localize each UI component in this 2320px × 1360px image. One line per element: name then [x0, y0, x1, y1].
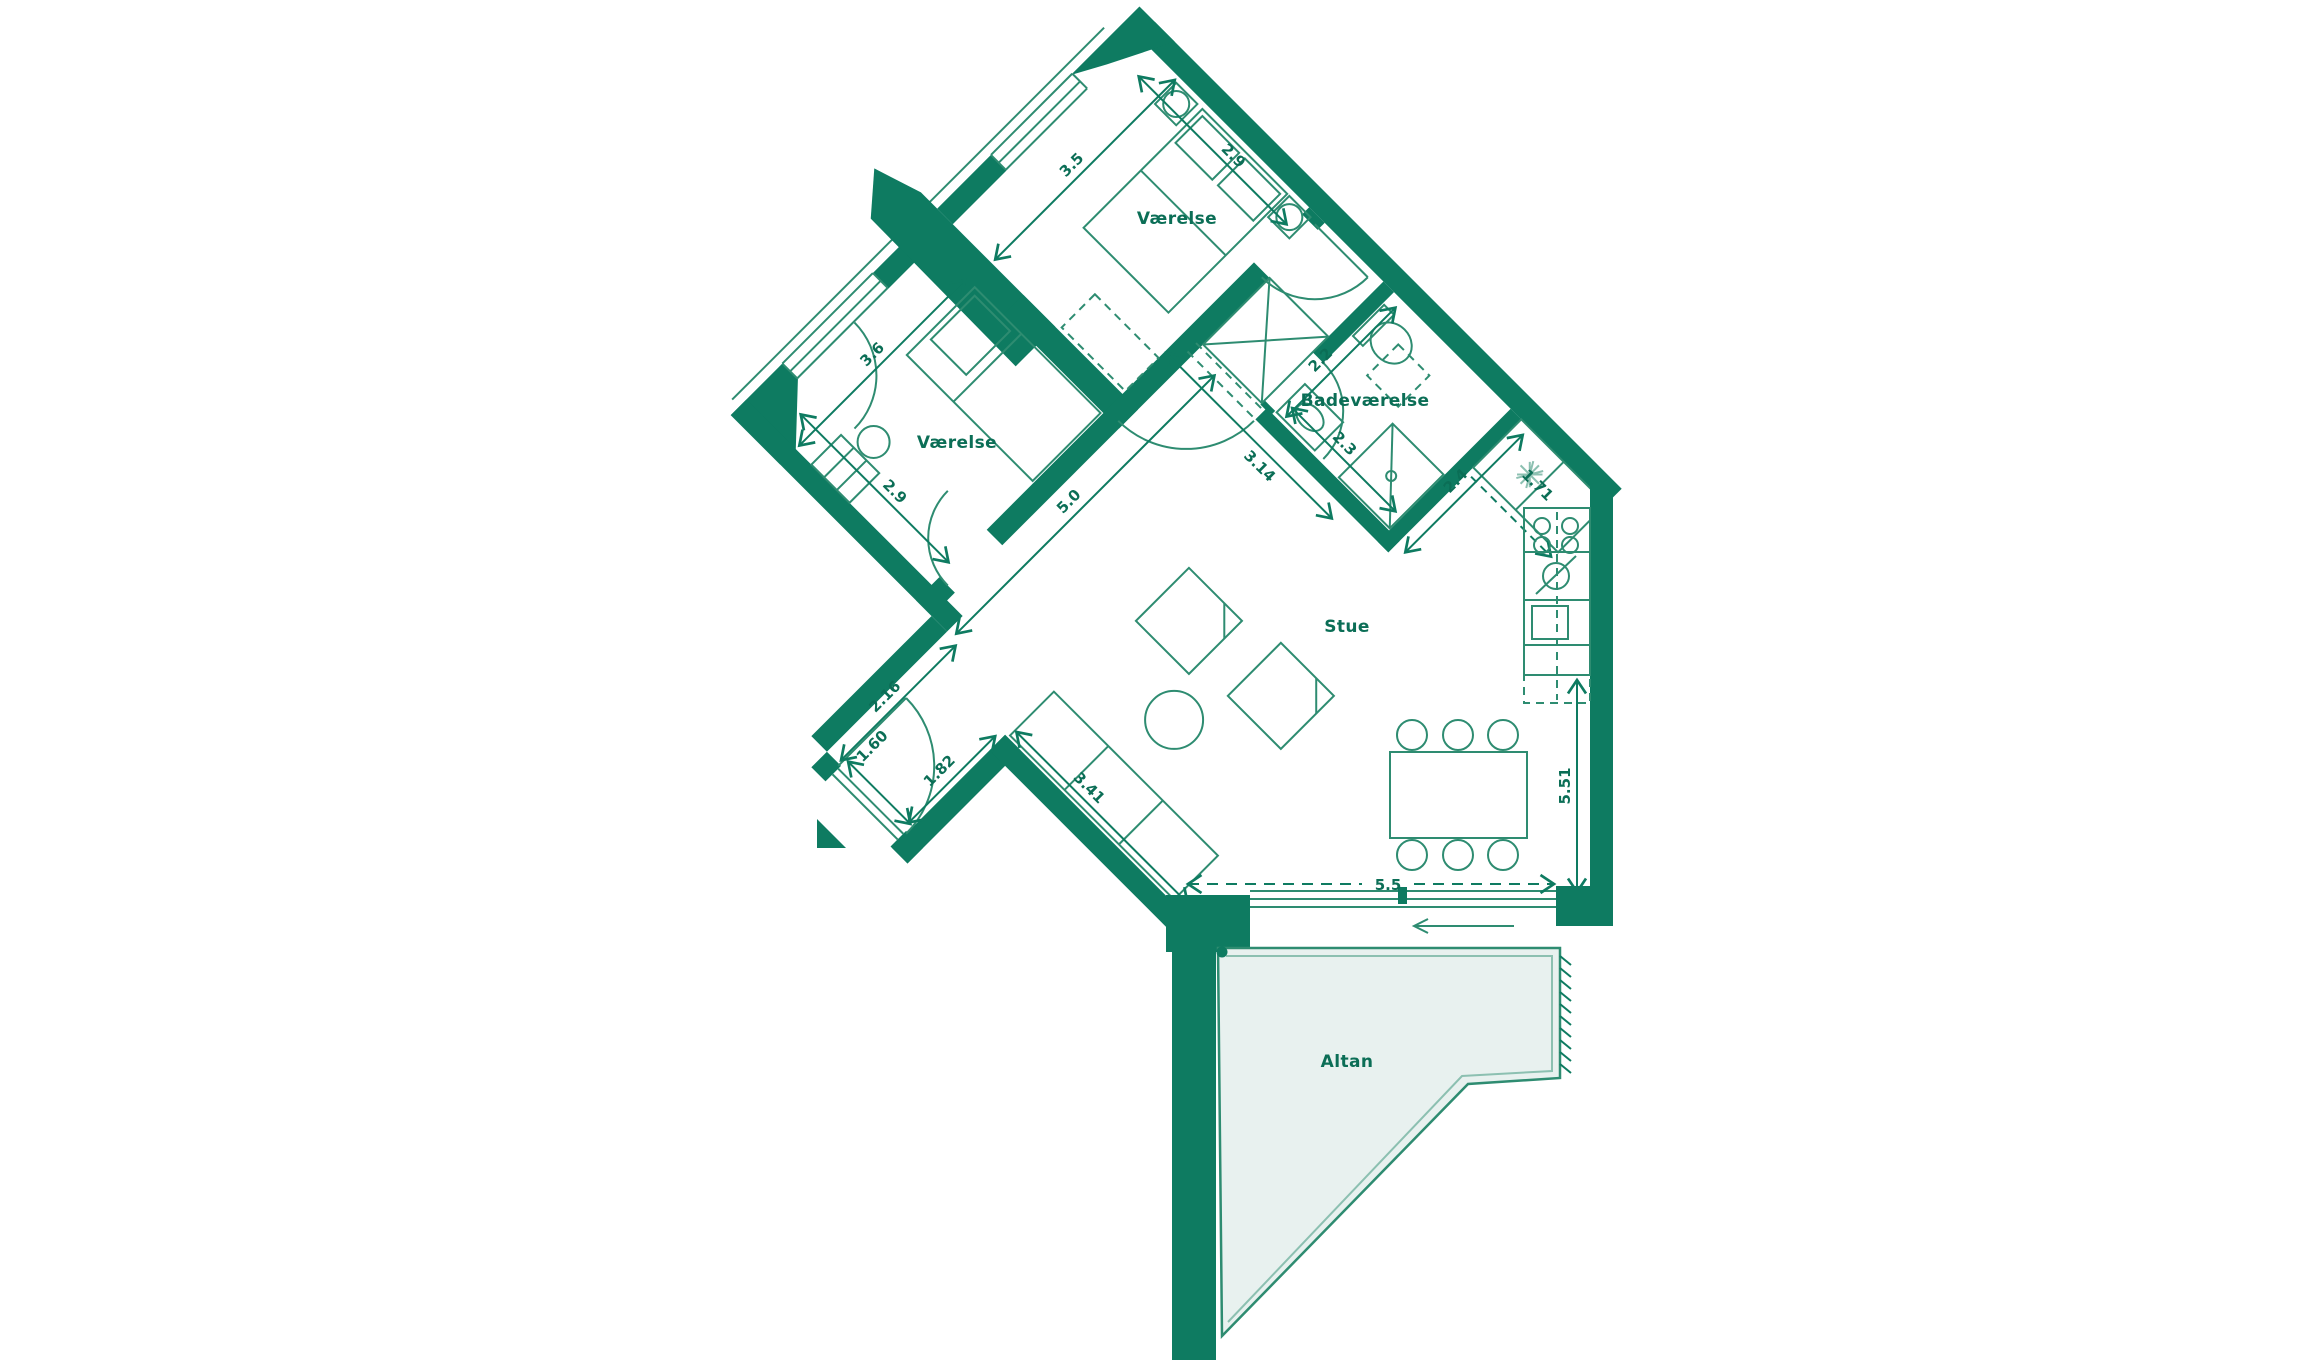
wall-corner-se [1556, 886, 1613, 926]
dim-entrance-door: 1.60 [853, 727, 892, 766]
dim-bedroom-left-width: 2.9 [879, 476, 911, 508]
floor-plan: 3.5 2.9 3.6 2.9 5.0 2.16 1.60 1.82 3.41 … [0, 0, 2320, 1360]
coffee-table [1133, 679, 1215, 761]
label-balcony: Altan [1321, 1052, 1374, 1072]
label-bedroom-top: Værelse [1137, 209, 1217, 229]
nightstand [1268, 196, 1310, 238]
dim-living-height: 5.51 [1556, 767, 1574, 804]
nightstand [1155, 83, 1197, 125]
chair [1488, 840, 1518, 870]
oven [1532, 606, 1568, 639]
balcony [1217, 947, 1572, 1337]
wall-nw-mid [937, 155, 1006, 224]
label-living-room: Stue [1324, 617, 1370, 637]
dim-bedroom-top-width: 2.9 [1218, 140, 1250, 172]
dim-living-diagonal: 5.0 [1053, 486, 1085, 518]
wall-balcony-west [1172, 905, 1216, 1360]
bedroom-left-furniture [762, 245, 1111, 594]
chair [1397, 720, 1427, 750]
dim-bedroom-top-length: 3.5 [1056, 149, 1088, 181]
wall-ne [1139, 22, 1621, 504]
balcony-hatch [1560, 956, 1571, 1073]
chair [1488, 720, 1518, 750]
window-swing-arc [801, 323, 907, 429]
armchair [1228, 643, 1334, 749]
dim-living-width: 5.5 [1375, 876, 1402, 894]
wall-bath-sw [1255, 408, 1399, 552]
label-bedroom-left: Værelse [917, 433, 997, 453]
rotated-wing: 3.5 2.9 3.6 2.9 5.0 2.16 1.60 1.82 3.41 … [543, 0, 1621, 1033]
dim-bath-face: 3.14 [1240, 447, 1279, 486]
walls-rotated [543, 0, 1621, 1033]
wall-east [1590, 480, 1613, 905]
balcony-doors [1250, 887, 1556, 933]
dim-bedroom-left-length: 3.6 [856, 339, 888, 371]
dim-kitchen-diagonal: 1.71 [1518, 466, 1557, 505]
label-bathroom: Badeværelse [1301, 391, 1430, 411]
dining-set [1390, 720, 1527, 870]
chair [1443, 720, 1473, 750]
toilet [1362, 314, 1420, 372]
living-furniture-rotated [1010, 554, 1356, 900]
railing-post [1217, 947, 1228, 958]
dining-table [1390, 752, 1527, 838]
chair [1397, 840, 1427, 870]
chair [1443, 840, 1473, 870]
armchair [1136, 568, 1242, 674]
dim-hall-opening: 1.82 [920, 751, 959, 790]
kitchen [1524, 508, 1590, 703]
entrance-arrow [817, 819, 846, 848]
floor-plan-page: 3.5 2.9 3.6 2.9 5.0 2.16 1.60 1.82 3.41 … [0, 0, 2320, 1360]
